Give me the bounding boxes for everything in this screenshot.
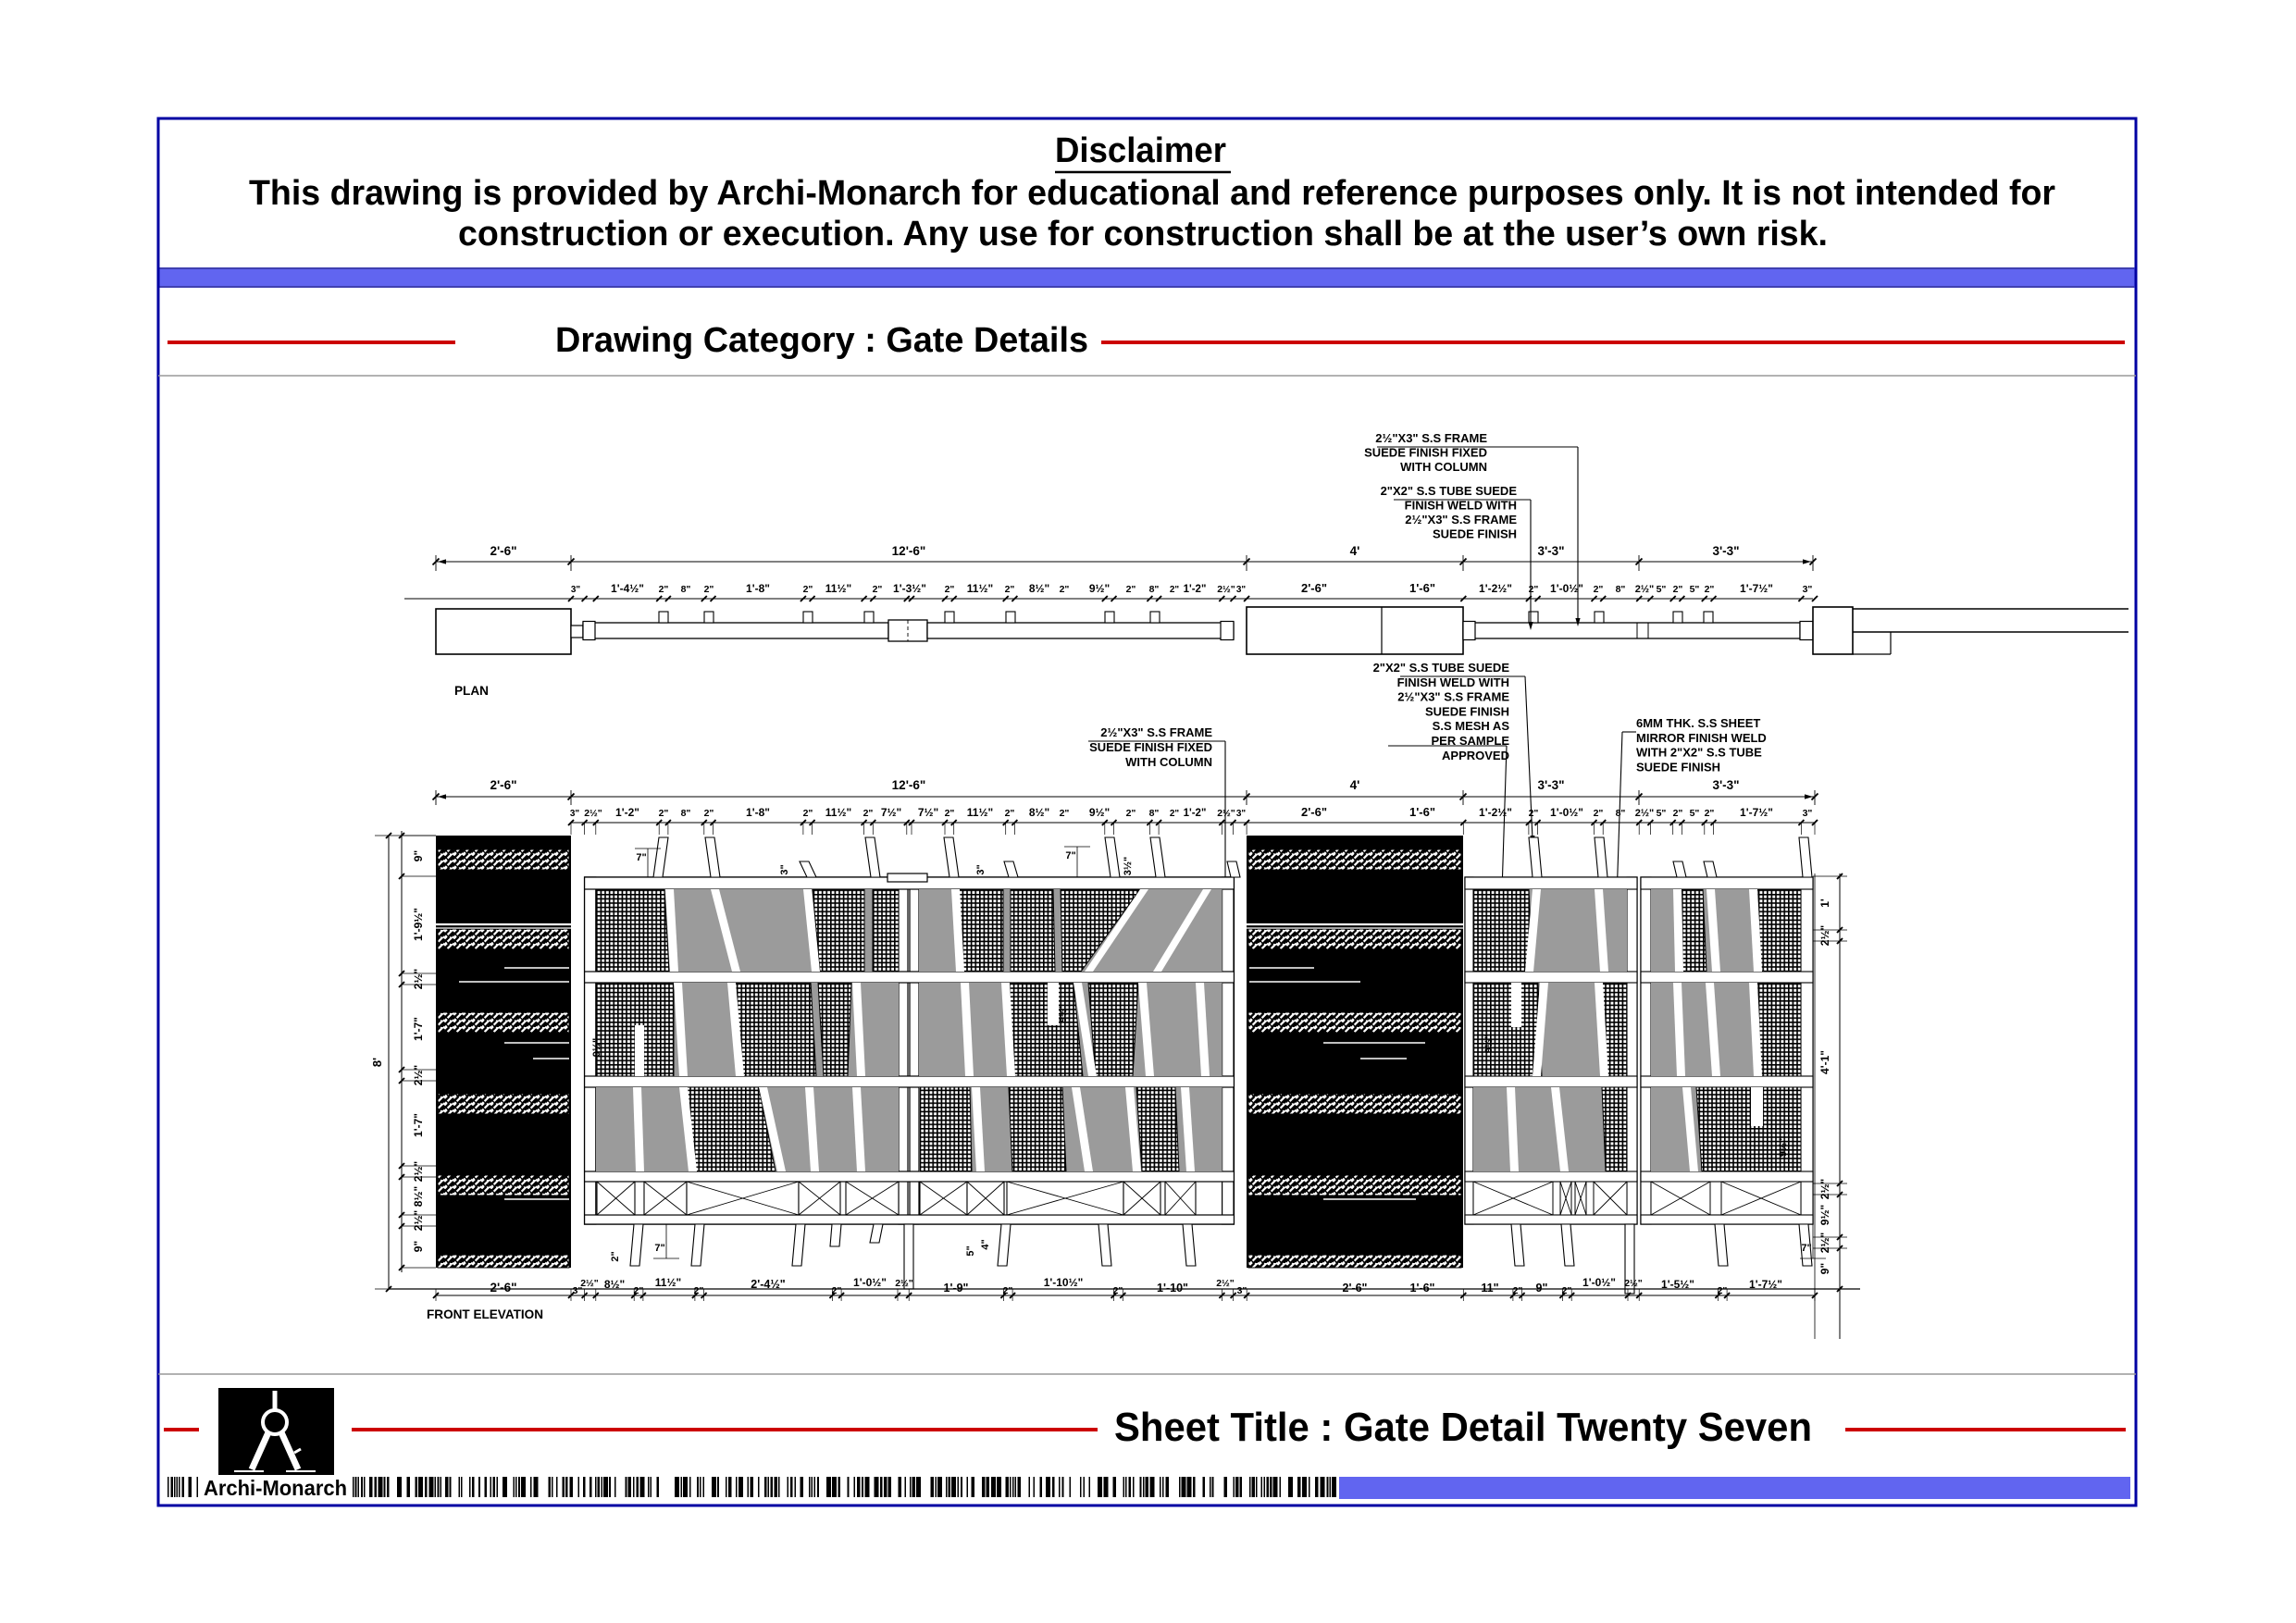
svg-text:8": 8" xyxy=(1149,584,1160,595)
svg-text:2½"X3" S.S FRAME: 2½"X3" S.S FRAME xyxy=(1375,431,1487,445)
svg-text:8': 8' xyxy=(370,1058,384,1067)
svg-text:1'-6": 1'-6" xyxy=(1409,581,1435,595)
svg-text:7": 7" xyxy=(1801,1243,1811,1254)
svg-text:SUEDE FINISH FIXED: SUEDE FINISH FIXED xyxy=(1364,446,1487,460)
svg-text:2½"X3" S.S FRAME: 2½"X3" S.S FRAME xyxy=(1100,725,1212,739)
svg-text:2½": 2½" xyxy=(1818,1179,1831,1199)
svg-text:construction or execution. Any: construction or execution. Any use for c… xyxy=(458,215,1828,254)
svg-text:2": 2" xyxy=(945,584,955,595)
svg-text:1'-7½": 1'-7½" xyxy=(1740,806,1773,819)
svg-text:2": 2" xyxy=(863,808,874,819)
svg-text:9": 9" xyxy=(412,850,425,861)
svg-text:9½": 9½" xyxy=(591,1038,602,1058)
svg-text:2½": 2½" xyxy=(1635,584,1655,595)
svg-text:3": 3" xyxy=(1237,1285,1247,1296)
svg-text:1'-8": 1'-8" xyxy=(746,806,770,819)
svg-text:1'-3½": 1'-3½" xyxy=(893,582,926,595)
svg-text:2": 2" xyxy=(803,584,813,595)
svg-text:7½": 7½" xyxy=(881,806,901,819)
svg-text:8½": 8½" xyxy=(604,1278,625,1291)
svg-text:2": 2" xyxy=(1005,584,1015,595)
svg-text:WITH COLUMN: WITH COLUMN xyxy=(1125,755,1212,769)
svg-text:11": 11" xyxy=(1481,1282,1498,1295)
svg-text:2½": 2½" xyxy=(1635,808,1655,819)
svg-text:4": 4" xyxy=(980,1239,991,1249)
svg-text:FRONT ELEVATION: FRONT ELEVATION xyxy=(427,1307,543,1321)
svg-text:4'-1": 4'-1" xyxy=(1818,1050,1831,1074)
svg-text:2": 2" xyxy=(1003,1285,1013,1296)
svg-text:2": 2" xyxy=(832,1285,842,1296)
svg-text:9½": 9½" xyxy=(1818,1205,1831,1225)
svg-text:2½": 2½" xyxy=(584,808,602,819)
svg-text:1'-2": 1'-2" xyxy=(1184,808,1207,819)
svg-text:2": 2" xyxy=(1562,1285,1572,1296)
svg-text:WITH 2"X2" S.S TUBE: WITH 2"X2" S.S TUBE xyxy=(1636,746,1762,760)
svg-text:2½": 2½" xyxy=(1818,925,1831,946)
svg-text:1'-0½": 1'-0½" xyxy=(1582,1276,1616,1289)
svg-text:1'-2½": 1'-2½" xyxy=(1479,806,1512,819)
svg-text:1'-0½": 1'-0½" xyxy=(1550,806,1583,819)
svg-text:1'-2": 1'-2" xyxy=(1184,584,1207,595)
svg-text:2½": 2½" xyxy=(412,1210,425,1231)
svg-text:1'-10": 1'-10" xyxy=(1157,1282,1188,1295)
svg-text:9½": 9½" xyxy=(1483,1035,1495,1054)
svg-text:1'-5½": 1'-5½" xyxy=(1661,1278,1694,1291)
svg-text:2": 2" xyxy=(610,1251,621,1261)
svg-text:2'-6": 2'-6" xyxy=(490,778,516,792)
svg-text:Sheet Title : Gate Detail Twen: Sheet Title : Gate Detail Twenty Seven xyxy=(1114,1405,1812,1450)
svg-text:2½"X3" S.S FRAME: 2½"X3" S.S FRAME xyxy=(1397,690,1509,704)
svg-text:1'-9½": 1'-9½" xyxy=(412,908,425,941)
svg-text:5": 5" xyxy=(1657,808,1667,819)
svg-text:2": 2" xyxy=(1673,808,1683,819)
svg-text:1'-9": 1'-9" xyxy=(944,1282,969,1295)
svg-text:6MM THK. S.S SHEET: 6MM THK. S.S SHEET xyxy=(1636,716,1760,730)
svg-text:2": 2" xyxy=(1060,808,1070,819)
svg-text:2": 2" xyxy=(1594,808,1604,819)
svg-text:SUEDE FINISH: SUEDE FINISH xyxy=(1425,704,1509,718)
svg-text:3": 3" xyxy=(1803,584,1813,595)
svg-text:3": 3" xyxy=(1236,585,1247,595)
svg-text:7": 7" xyxy=(636,852,646,863)
svg-text:2½": 2½" xyxy=(412,1161,425,1182)
svg-text:1'-6": 1'-6" xyxy=(1409,805,1435,819)
svg-text:SUEDE FINISH FIXED: SUEDE FINISH FIXED xyxy=(1089,740,1212,754)
svg-text:1'-0½": 1'-0½" xyxy=(853,1276,887,1289)
svg-text:2½": 2½" xyxy=(580,1278,599,1289)
svg-text:9½": 9½" xyxy=(1058,1004,1069,1023)
svg-text:2": 2" xyxy=(1170,585,1180,595)
svg-text:Drawing Category : Gate Detail: Drawing Category : Gate Details xyxy=(555,321,1088,360)
svg-text:8": 8" xyxy=(681,584,691,595)
svg-text:5": 5" xyxy=(965,1245,976,1256)
svg-text:2": 2" xyxy=(634,1285,644,1296)
svg-text:3": 3" xyxy=(779,864,790,874)
svg-text:11½": 11½" xyxy=(655,1276,681,1289)
svg-text:9½": 9½" xyxy=(1089,582,1110,595)
svg-text:This drawing is provided by Ar: This drawing is provided by Archi-Monarc… xyxy=(249,174,2055,213)
svg-text:11½": 11½" xyxy=(825,806,851,819)
svg-text:2'-6": 2'-6" xyxy=(490,1281,516,1295)
svg-text:2½": 2½" xyxy=(1216,1278,1235,1289)
svg-text:2": 2" xyxy=(1126,584,1136,595)
svg-text:FINISH WELD WITH: FINISH WELD WITH xyxy=(1397,675,1509,689)
svg-text:APPROVED: APPROVED xyxy=(1442,749,1509,762)
svg-text:2": 2" xyxy=(945,808,955,819)
svg-text:8": 8" xyxy=(1616,584,1626,595)
svg-text:3'-3": 3'-3" xyxy=(1712,778,1739,792)
svg-text:12'-6": 12'-6" xyxy=(892,778,926,792)
svg-text:3'-3": 3'-3" xyxy=(1712,544,1739,558)
svg-text:11½": 11½" xyxy=(967,806,993,819)
svg-text:2½": 2½" xyxy=(1818,1233,1831,1253)
svg-text:SUEDE FINISH: SUEDE FINISH xyxy=(1433,527,1517,541)
svg-text:3'-3": 3'-3" xyxy=(1537,778,1564,792)
svg-text:2": 2" xyxy=(803,808,813,819)
svg-text:2": 2" xyxy=(1170,809,1180,819)
svg-text:FINISH WELD WITH: FINISH WELD WITH xyxy=(1405,499,1517,513)
svg-text:2½": 2½" xyxy=(412,969,425,989)
svg-text:12'-6": 12'-6" xyxy=(892,544,926,558)
svg-text:8": 8" xyxy=(1616,808,1626,819)
svg-text:1'-2": 1'-2" xyxy=(615,806,639,819)
svg-text:3": 3" xyxy=(975,864,987,874)
svg-text:1'-0½": 1'-0½" xyxy=(1550,582,1583,595)
svg-text:2": 2" xyxy=(659,808,669,819)
svg-text:3": 3" xyxy=(570,809,580,819)
svg-text:7": 7" xyxy=(654,1243,664,1254)
svg-text:2": 2" xyxy=(1113,1285,1123,1296)
svg-text:Disclaimer: Disclaimer xyxy=(1055,131,1226,170)
svg-text:Archi-Monarch: Archi-Monarch xyxy=(204,1476,347,1500)
svg-text:2": 2" xyxy=(659,584,669,595)
svg-text:9½": 9½" xyxy=(1778,1138,1789,1158)
svg-text:9": 9" xyxy=(1536,1282,1548,1295)
svg-text:3½": 3½" xyxy=(1123,857,1134,876)
svg-text:8½": 8½" xyxy=(412,1186,425,1207)
svg-text:MIRROR FINISH WELD: MIRROR FINISH WELD xyxy=(1636,731,1767,745)
svg-text:2½": 2½" xyxy=(1217,808,1235,819)
svg-text:2": 2" xyxy=(1529,584,1539,595)
svg-text:2'-6": 2'-6" xyxy=(1301,805,1327,819)
svg-text:3'-3": 3'-3" xyxy=(1537,544,1564,558)
svg-text:1'-7½": 1'-7½" xyxy=(1740,582,1773,595)
svg-text:2'-6": 2'-6" xyxy=(490,544,516,558)
svg-text:5": 5" xyxy=(1657,584,1667,595)
svg-text:8½": 8½" xyxy=(1029,582,1049,595)
svg-text:1'-6": 1'-6" xyxy=(1410,1282,1435,1295)
svg-text:9": 9" xyxy=(412,1241,425,1252)
svg-text:5": 5" xyxy=(1690,584,1700,595)
svg-text:2": 2" xyxy=(1060,584,1070,595)
svg-text:1'-7": 1'-7" xyxy=(412,1113,425,1137)
svg-text:4': 4' xyxy=(1350,778,1360,792)
svg-text:1'-8": 1'-8" xyxy=(746,582,770,595)
svg-text:2½": 2½" xyxy=(412,1065,425,1085)
svg-text:3": 3" xyxy=(1236,809,1247,819)
svg-text:9½": 9½" xyxy=(1089,806,1110,819)
svg-text:5": 5" xyxy=(1690,808,1700,819)
svg-text:2": 2" xyxy=(1126,808,1136,819)
svg-text:2": 2" xyxy=(1705,808,1715,819)
svg-text:2": 2" xyxy=(694,1285,704,1296)
svg-text:11½": 11½" xyxy=(825,582,851,595)
svg-text:1'-2½": 1'-2½" xyxy=(1479,582,1512,595)
svg-text:2": 2" xyxy=(704,584,714,595)
svg-text:WITH COLUMN: WITH COLUMN xyxy=(1400,460,1487,474)
svg-text:4': 4' xyxy=(1350,544,1360,558)
svg-text:2'-4½": 2'-4½" xyxy=(751,1278,785,1291)
svg-text:3": 3" xyxy=(571,585,581,595)
svg-text:2½"X3" S.S FRAME: 2½"X3" S.S FRAME xyxy=(1405,513,1517,527)
svg-text:3": 3" xyxy=(1803,808,1813,819)
svg-text:1'-10½": 1'-10½" xyxy=(1044,1276,1084,1289)
svg-text:2½": 2½" xyxy=(1624,1278,1643,1289)
svg-text:2": 2" xyxy=(704,808,714,819)
svg-text:PLAN: PLAN xyxy=(454,683,489,698)
svg-text:SUEDE FINISH: SUEDE FINISH xyxy=(1636,760,1720,774)
svg-text:8": 8" xyxy=(681,808,691,819)
svg-text:7": 7" xyxy=(1065,850,1075,861)
svg-text:8½": 8½" xyxy=(1029,806,1049,819)
svg-text:2": 2" xyxy=(1594,584,1604,595)
svg-text:2'-6": 2'-6" xyxy=(1343,1282,1368,1295)
svg-text:11½": 11½" xyxy=(967,582,993,595)
svg-text:2": 2" xyxy=(1673,584,1683,595)
svg-text:2": 2" xyxy=(1005,808,1015,819)
svg-text:1': 1' xyxy=(1818,898,1831,908)
svg-text:2": 2" xyxy=(1529,808,1539,819)
svg-text:2'-6": 2'-6" xyxy=(1301,581,1327,595)
svg-text:2": 2" xyxy=(1718,1285,1728,1296)
svg-text:2"X2" S.S TUBE SUEDE: 2"X2" S.S TUBE SUEDE xyxy=(1381,484,1518,498)
svg-text:2½": 2½" xyxy=(895,1278,913,1289)
svg-text:2": 2" xyxy=(873,584,883,595)
svg-text:9": 9" xyxy=(1818,1263,1831,1274)
svg-text:1'-7": 1'-7" xyxy=(412,1017,425,1041)
svg-text:2½": 2½" xyxy=(1217,584,1235,595)
svg-text:2": 2" xyxy=(1513,1285,1523,1296)
svg-text:S.S MESH AS: S.S MESH AS xyxy=(1433,719,1510,733)
svg-text:2": 2" xyxy=(1705,584,1715,595)
svg-text:2"X2" S.S TUBE SUEDE: 2"X2" S.S TUBE SUEDE xyxy=(1373,661,1510,675)
svg-text:8": 8" xyxy=(1149,808,1160,819)
svg-text:1'-4½": 1'-4½" xyxy=(611,582,644,595)
svg-text:1'-7½": 1'-7½" xyxy=(1749,1278,1782,1291)
svg-text:7½": 7½" xyxy=(918,806,938,819)
